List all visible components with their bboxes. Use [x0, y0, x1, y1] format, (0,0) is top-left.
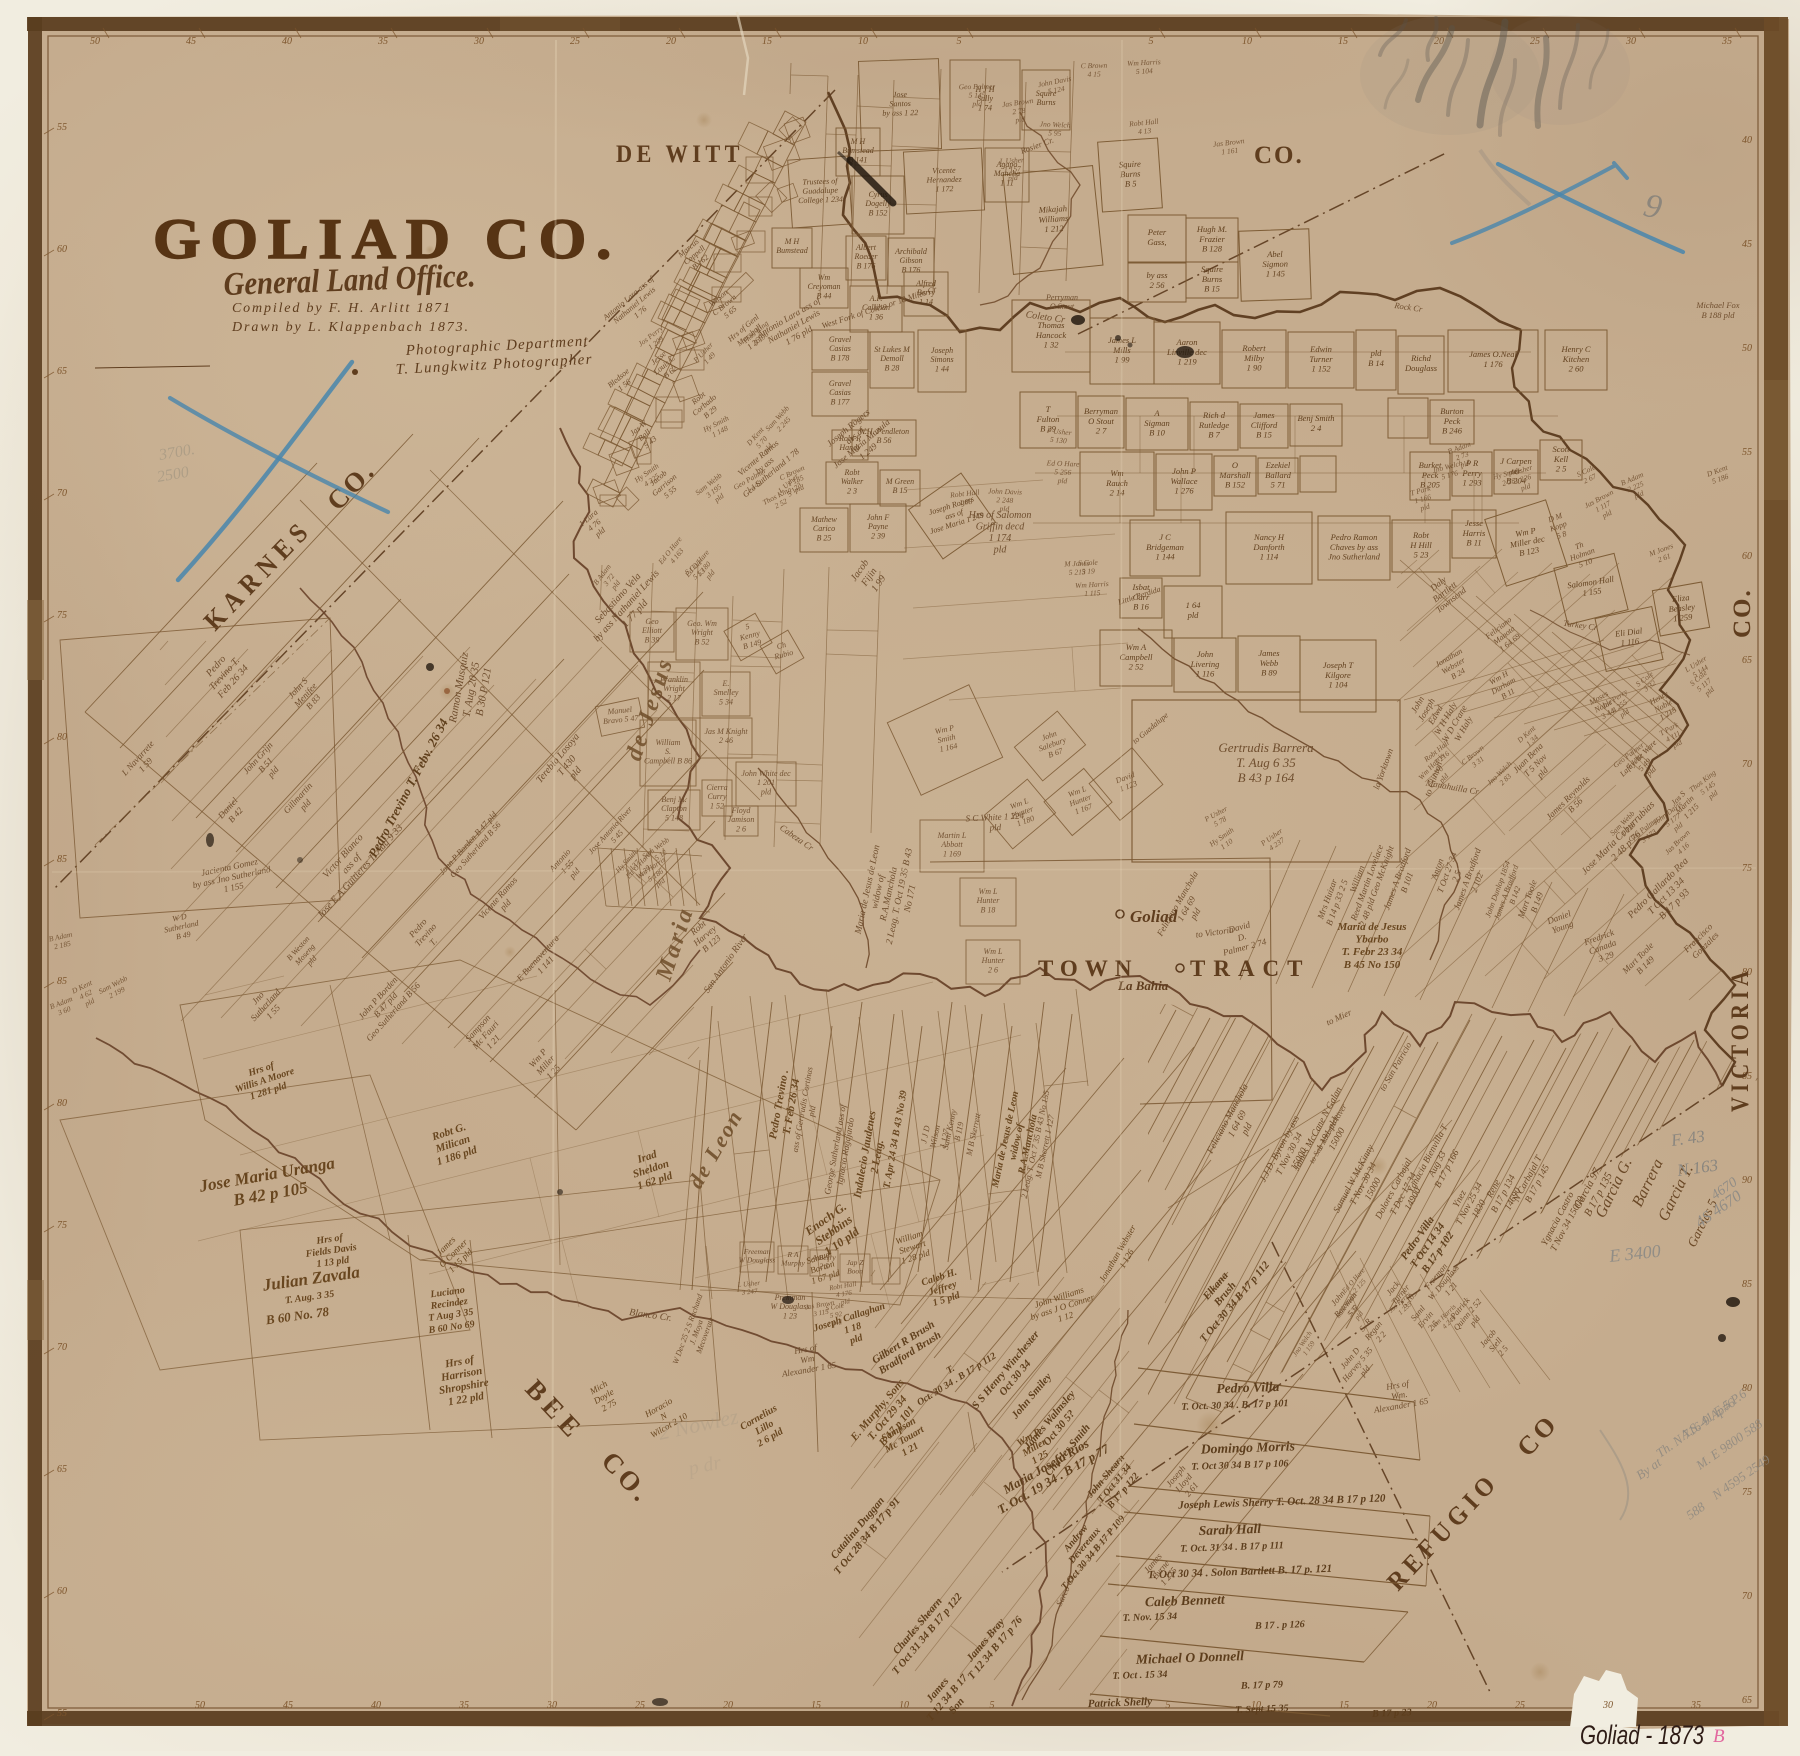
svg-text:70: 70: [1742, 1591, 1752, 1602]
svg-text:Maria de JesusYbarboT. Febr 23: Maria de JesusYbarboT. Febr 23 34B 45 No…: [1336, 921, 1406, 971]
svg-text:T. Nov. 15 34: T. Nov. 15 34: [1122, 1611, 1177, 1624]
svg-text:B. 17 p 79: B. 17 p 79: [1240, 1679, 1283, 1691]
svg-text:La Bahia: La Bahia: [1117, 978, 1169, 993]
svg-text:90: 90: [1742, 1175, 1752, 1186]
svg-text:Pedro RamonChaves by assJno Su: Pedro RamonChaves by assJno Sutherland: [1328, 532, 1380, 562]
svg-text:B: B: [1713, 1726, 1725, 1747]
svg-text:20: 20: [666, 36, 676, 47]
svg-text:40: 40: [371, 1700, 381, 1711]
svg-text:B 17 p 23: B 17 p 23: [1371, 1707, 1412, 1719]
svg-text:25: 25: [635, 1700, 645, 1711]
svg-text:Drawn by L. Klappenbach 1873.: Drawn by L. Klappenbach 1873.: [231, 320, 468, 335]
svg-text:15: 15: [1338, 36, 1348, 47]
svg-text:35: 35: [1690, 1700, 1701, 1711]
svg-text:EdwinTurner1 152: EdwinTurner1 152: [1309, 344, 1333, 374]
svg-text:25: 25: [1515, 1700, 1525, 1711]
svg-text:Goliad - 1873: Goliad - 1873: [1580, 1720, 1704, 1750]
svg-text:20: 20: [723, 1700, 733, 1711]
svg-text:55: 55: [1742, 447, 1752, 458]
svg-text:75: 75: [57, 1220, 67, 1231]
svg-text:85: 85: [57, 976, 67, 987]
svg-text:35: 35: [1721, 36, 1732, 47]
svg-text:70: 70: [1742, 759, 1752, 770]
svg-text:85: 85: [1742, 1279, 1752, 1290]
svg-text:SquireBurnsB 15: SquireBurnsB 15: [1201, 264, 1223, 294]
svg-text:60: 60: [1742, 551, 1752, 562]
svg-text:B 17 . p 126: B 17 . p 126: [1254, 1619, 1306, 1632]
svg-text:80: 80: [57, 732, 67, 743]
svg-text:65: 65: [1742, 1695, 1752, 1706]
svg-text:85: 85: [57, 854, 67, 865]
svg-text:40: 40: [1742, 135, 1752, 146]
svg-text:80: 80: [57, 1098, 67, 1109]
svg-text:20: 20: [1427, 1700, 1437, 1711]
svg-text:75: 75: [1742, 1487, 1752, 1498]
svg-text:DE WITT: DE WITT: [616, 141, 744, 168]
svg-text:65: 65: [57, 1464, 67, 1475]
svg-text:TRACT: TRACT: [1190, 956, 1311, 981]
svg-text:70: 70: [57, 1342, 67, 1353]
svg-text:10: 10: [899, 1700, 909, 1711]
svg-text:GravelCasiasB 177: GravelCasiasB 177: [829, 379, 852, 406]
svg-text:Caleb Bennett: Caleb Bennett: [1145, 1592, 1226, 1610]
svg-text:Jap ZBoon: Jap ZBoon: [847, 1258, 865, 1276]
svg-text:GravelCasiasB 178: GravelCasiasB 178: [829, 335, 852, 362]
svg-text:5: 5: [1149, 36, 1154, 47]
svg-text:45: 45: [1742, 239, 1752, 250]
svg-text:Sarah Hall: Sarah Hall: [1198, 1521, 1261, 1538]
svg-text:35: 35: [377, 36, 388, 47]
svg-text:Goliad: Goliad: [1130, 907, 1178, 926]
svg-text:CO.: CO.: [1254, 142, 1304, 169]
svg-text:30: 30: [1625, 36, 1636, 47]
svg-text:5: 5: [957, 36, 962, 47]
svg-text:55: 55: [57, 122, 67, 133]
svg-text:45: 45: [186, 36, 196, 47]
svg-text:50: 50: [90, 36, 100, 47]
svg-text:50: 50: [195, 1700, 205, 1711]
svg-text:60: 60: [57, 1586, 67, 1597]
svg-text:55: 55: [57, 1708, 67, 1719]
svg-text:10: 10: [858, 36, 868, 47]
svg-text:Trustees ofGuadalupeCollege 1: Trustees ofGuadalupeCollege 1 234: [797, 176, 843, 205]
svg-text:15: 15: [811, 1700, 821, 1711]
svg-text:40: 40: [282, 36, 292, 47]
svg-text:VICTORIA: VICTORIA: [1727, 966, 1754, 1112]
svg-text:Pedro Villa: Pedro Villa: [1216, 1379, 1280, 1396]
svg-text:AlbertRoederB 176: AlbertRoederB 176: [853, 243, 878, 270]
svg-text:30: 30: [473, 36, 484, 47]
svg-text:65: 65: [1742, 655, 1752, 666]
svg-text:PerrymanO Stout: PerrymanO Stout: [1045, 293, 1078, 311]
svg-text:25: 25: [570, 36, 580, 47]
svg-text:60: 60: [57, 244, 67, 255]
svg-text:75: 75: [57, 610, 67, 621]
svg-text:PeterGass,: PeterGass,: [1147, 227, 1167, 247]
svg-text:15: 15: [1339, 1700, 1349, 1711]
svg-text:10: 10: [1242, 36, 1252, 47]
svg-text:70: 70: [57, 488, 67, 499]
svg-text:45: 45: [283, 1700, 293, 1711]
svg-text:CO.: CO.: [1729, 588, 1756, 638]
svg-text:50: 50: [1742, 343, 1752, 354]
svg-text:T. Sept 15 35: T. Sept 15 35: [1235, 1703, 1289, 1716]
svg-text:65: 65: [57, 366, 67, 377]
svg-text:15: 15: [762, 36, 772, 47]
svg-text:Michael FoxB 188 pld: Michael FoxB 188 pld: [1695, 300, 1739, 320]
svg-text:5: 5: [990, 1700, 995, 1711]
svg-text:30: 30: [1602, 1700, 1613, 1711]
svg-text:35: 35: [458, 1700, 469, 1711]
svg-text:FreemanW Douglass: FreemanW Douglass: [739, 1247, 776, 1265]
